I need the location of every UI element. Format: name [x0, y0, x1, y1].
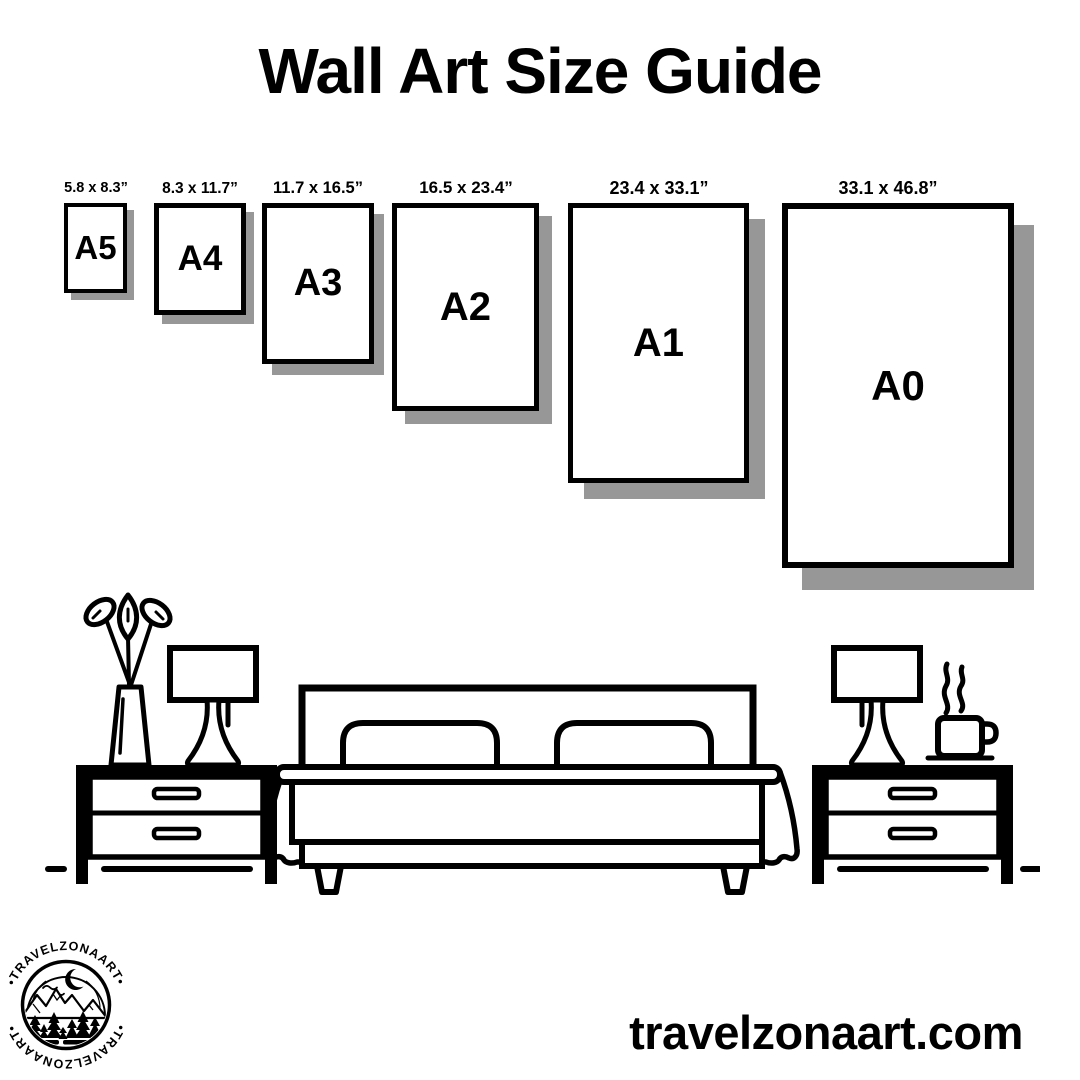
blanket-drape-right	[760, 772, 797, 863]
bedroom-scene-illustration	[40, 585, 1040, 900]
bed-base	[302, 842, 762, 866]
table-lamp-icon-right	[834, 648, 920, 765]
dimension-label-a5: 5.8 x 8.3”	[64, 180, 128, 196]
steam-icon	[944, 664, 947, 713]
paper-size-box-a3: A3	[262, 203, 374, 364]
page-title: Wall Art Size Guide	[0, 34, 1080, 108]
paper-size-box-a0: A0	[782, 203, 1014, 568]
nightstand-icon-right	[818, 771, 1007, 884]
coffee-cup-icon	[928, 664, 996, 758]
blanket-front	[292, 782, 762, 842]
bed-icon	[266, 688, 797, 892]
bed-legs	[317, 866, 747, 892]
dimension-label-a4: 8.3 x 11.7”	[162, 180, 238, 198]
paper-size-box-a2: A2	[392, 203, 539, 411]
paper-size-box-a1: A1	[568, 203, 749, 483]
paper-size-code: A3	[294, 262, 343, 305]
paper-size-box-a5: A5	[64, 203, 127, 293]
paper-size-code: A4	[178, 239, 223, 279]
paper-size-code: A2	[440, 285, 491, 330]
steam-icon	[959, 667, 963, 711]
plant-vase-icon	[81, 594, 175, 765]
dimension-label-a1: 23.4 x 33.1”	[609, 178, 708, 199]
website-url: travelzonaart.com	[576, 1005, 1076, 1060]
paper-size-box-a4: A4	[154, 203, 246, 315]
table-lamp-icon-left	[170, 648, 256, 765]
paper-size-code: A1	[633, 321, 684, 366]
dimension-label-a2: 16.5 x 23.4”	[419, 178, 513, 198]
pillow-icon	[557, 723, 711, 768]
dimension-label-a0: 33.1 x 46.8”	[838, 178, 937, 199]
paper-size-code: A0	[871, 362, 925, 410]
brand-logo-badge: •TRAVELZONAART• •TRAVELZONAART•	[6, 932, 126, 1080]
paper-size-code: A5	[74, 229, 116, 267]
nightstand-icon-left	[82, 771, 271, 884]
wall-art-size-guide-poster: Wall Art Size Guide 5.8 x 8.3” 8.3 x 11.…	[0, 0, 1080, 1080]
pillow-icon	[343, 723, 497, 768]
dimension-label-a3: 11.7 x 16.5”	[273, 179, 363, 198]
